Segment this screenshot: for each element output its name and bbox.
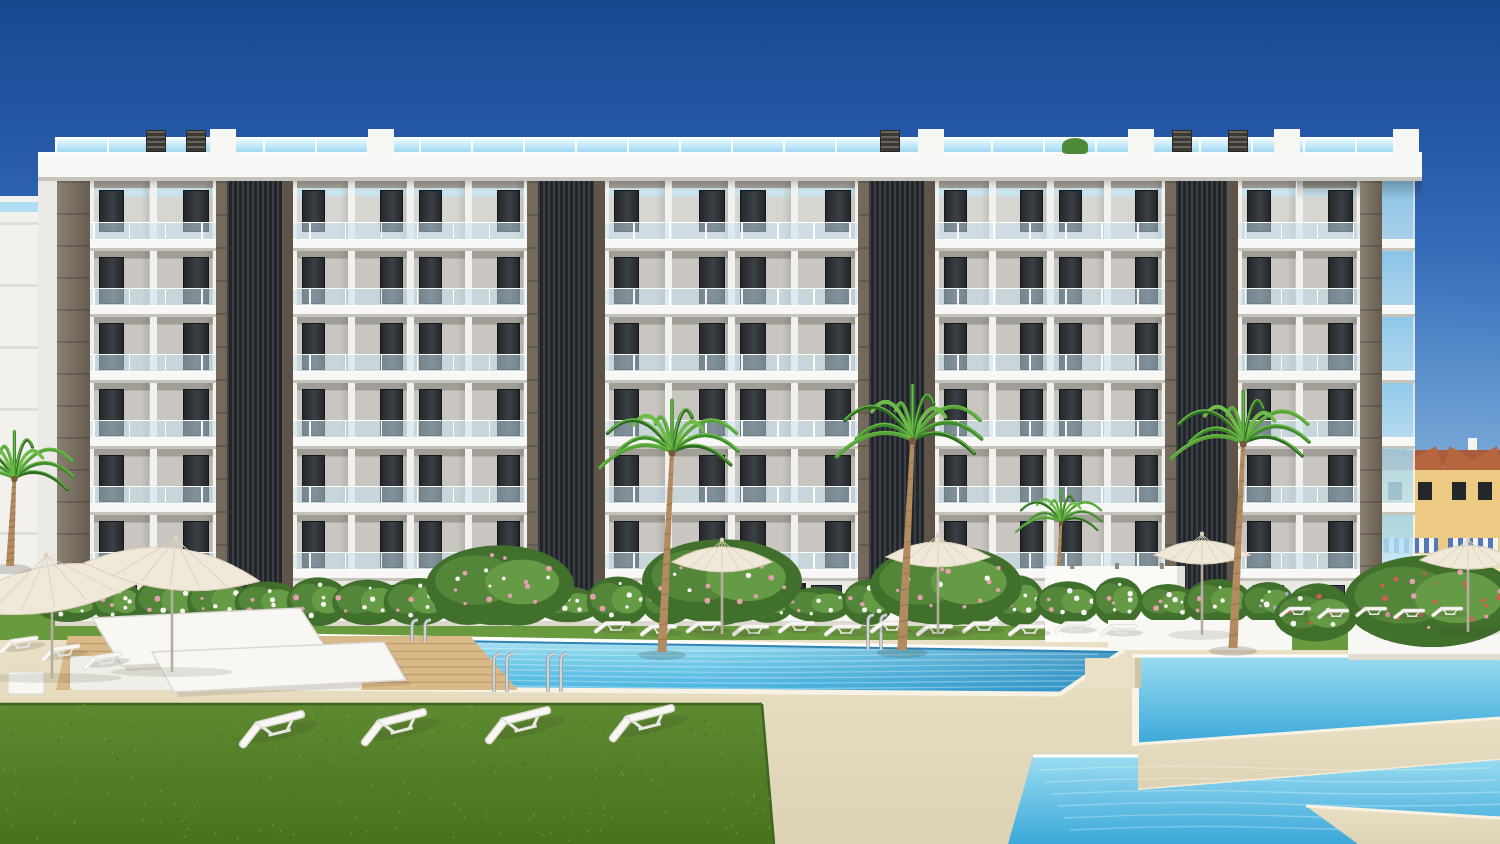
umbrella-finial [936,532,940,536]
hedge-flower [250,598,254,602]
hedge-flower [945,569,951,575]
palm-fruit [1240,441,1247,448]
hedge-flower [1128,597,1133,602]
scene-apartment-complex-render [0,0,1500,844]
palm-frond [837,433,913,457]
hedge-flower [978,599,982,603]
hedge-flower [111,613,115,617]
palm-fruit [669,450,676,457]
lounger-seat [1402,609,1425,612]
hedge-flower [838,596,842,600]
hedge-flower [202,607,205,610]
lounger-seat [1018,625,1045,629]
hedge-flower [782,585,786,589]
hedge-flower [816,598,821,603]
shower-hook [1070,563,1074,569]
hedge-flower [1259,604,1262,607]
hedge-flower [183,591,188,596]
hedge-flower [1213,605,1217,609]
hedge-flower [268,589,272,593]
hedge-flower [155,596,161,602]
hedge-flower [577,607,582,612]
hedge-flower [1060,610,1065,615]
hedge-flower [862,607,867,612]
hedge-flower [502,577,506,581]
hedge-flower [1309,622,1312,625]
palm-fruit [909,437,916,444]
hedge-flower [309,613,314,618]
hedge-flower [705,598,711,604]
hedge-flower [1331,622,1336,627]
hedge-flower [1423,572,1427,576]
hedge-flower [940,568,944,572]
hedge-flower [1158,599,1162,603]
hedge-flower [369,586,372,589]
hedge-flower [562,605,567,610]
hedge-flower [213,604,217,608]
hedge-flower [408,597,413,602]
umbrella-finial [720,537,724,541]
hedge-flower [488,584,491,587]
lounger-seat [1440,607,1463,610]
hedge-flower [322,596,326,600]
hedge-flower [1298,596,1303,601]
hedge-flower [575,599,579,603]
hedge-flower [58,612,63,617]
hedge-flower [1260,599,1263,602]
hedge-flower [1047,597,1051,601]
hedge-bush [1036,581,1100,624]
hedge-bush [587,576,650,626]
hedge-flower [860,602,865,607]
hedge-flower [321,602,326,607]
hedge-flower [896,589,899,592]
hedge-flower [80,609,83,612]
hedge-flower [1433,582,1436,585]
hedge-flower [1411,593,1416,598]
lounger-seat [834,625,861,629]
hedge-flower [335,595,341,601]
hedge-flower [1180,610,1185,615]
hedge-flower [525,584,530,589]
hedge-flower [797,609,801,613]
hedge-flower [985,576,990,581]
hedge-flower [996,588,1000,592]
hedge-flower [809,612,813,616]
hedge-flower [1127,610,1131,614]
hedge-flower [425,605,429,609]
hedge-flower [381,608,385,612]
hedge-flower [1410,579,1416,585]
hedge-flower [737,599,743,605]
pool-step-platform [1085,658,1141,688]
hedge-flower [679,566,682,569]
lounger-seat [742,625,769,629]
hedge-flower [1107,596,1112,601]
hedge-flower [1196,608,1200,612]
lounger-seat [926,625,953,629]
hedge-flower [1118,583,1122,587]
hedge-flower [1173,597,1178,602]
hedge-flower [780,611,784,615]
hedge-flower [918,595,923,600]
lounger-seat [972,622,999,626]
hedge-flower [1268,590,1271,593]
far-left-palm-tree [0,430,74,574]
hedge-flower [746,573,751,578]
hedge-flower [408,613,413,618]
hedge-flower [1153,605,1159,611]
hedge-flower [455,576,460,581]
hedge-flower [1393,577,1398,582]
hedge-flower [1481,598,1486,603]
hedge-flower [110,603,114,607]
hedge-flower [370,596,375,601]
hedge-flower [1382,595,1388,601]
hedge-flower [828,608,833,613]
hedge-flower [1380,583,1384,587]
hedge-flower [1128,591,1133,596]
shower-hook [1115,563,1119,569]
hedge-flower [127,599,131,603]
hedge-flower [490,553,494,557]
hedge-flower [687,588,691,592]
hedge-flower [1049,607,1054,612]
hedge-flower [1457,569,1463,575]
hedge-flower [463,571,468,576]
lounger-seat [696,622,723,626]
umbrella-finial [1466,537,1470,541]
hedge-flower [318,583,323,588]
hedge-flower [877,609,882,614]
hedge-flower [463,602,467,606]
hedge-flower [1285,592,1289,596]
hedge-flower [706,584,711,589]
hedge-flower [418,584,422,588]
lounger-seat [1110,625,1137,629]
hedge-flower [1026,607,1031,612]
hedge-flower [929,604,933,608]
hedge-flower [200,597,203,600]
hedge-flower [1164,604,1168,608]
hedge-flower [1470,617,1475,622]
hedge-flower [590,594,596,600]
grounds-layer [0,0,1500,844]
hedge-flower [848,596,852,600]
hedge-flower [1112,601,1116,605]
hedge-flower [293,595,299,601]
planter-shadow [1348,654,1500,660]
hedge-flower [1180,601,1183,604]
hedge-flower [619,582,622,585]
lounger-seat [788,622,815,626]
hedge-flower [344,609,347,612]
hedge-flower [1264,602,1270,608]
hedge-flower [769,575,775,581]
hedge-flower [160,607,166,613]
palm-fruit [1059,521,1063,525]
hedge-flower [270,597,275,602]
hedge-flower [486,596,492,602]
hedge-flower [625,605,629,609]
hedge-flower [123,606,127,610]
hedge-flower [362,605,367,610]
hedge-bush [426,545,574,625]
hedge-flower [1013,607,1017,611]
palm-fruit [11,476,17,482]
hedge-flower [524,580,529,585]
hedge-flower [508,593,513,598]
hedge-flower [454,588,458,592]
hedge-flower [1081,610,1086,615]
shower-hook [1160,563,1164,569]
hedge-flower [673,573,676,576]
hedge-flower [1166,592,1171,597]
hedge-flower [271,603,276,608]
hedge-flower [123,596,127,600]
hedge-flower [1113,608,1116,611]
hedge-flower [1074,596,1079,601]
hedge-flower [147,607,152,612]
hedge-flower [533,600,537,604]
hedge-flower [609,613,614,618]
lounger-seat [1326,609,1349,612]
hedge-flower [1067,588,1072,593]
hedge-flower [627,592,632,597]
pool-step-shadow [1135,658,1141,688]
hedge-flower [1219,586,1222,589]
lounger-seat [1288,607,1311,610]
hedge-flower [1484,604,1488,608]
hedge-flower [962,605,966,609]
hedge-flower [396,609,399,612]
hedge-flower [180,608,185,613]
hedge-flower [1484,614,1488,618]
hedge-flower [1316,594,1321,599]
hedge-flower [503,556,507,560]
lounger-seat [1364,607,1387,610]
hedge-flower [1023,594,1027,598]
lounger-seat [604,622,631,626]
hedge-flower [600,606,606,612]
hedge-flower [546,566,552,572]
hedge-flower [1427,626,1430,629]
hedge-flower [1220,598,1224,602]
umbrella-finial [1200,532,1204,536]
hedge-flower [996,566,1000,570]
lounger-seat [1064,622,1091,626]
hedge-flower [484,568,488,572]
hedge-bush [1093,577,1143,626]
hedge-flower [546,575,550,579]
hedge-flower [1433,599,1438,604]
hedge-flower [1291,621,1297,627]
hedge-flower [754,594,758,598]
